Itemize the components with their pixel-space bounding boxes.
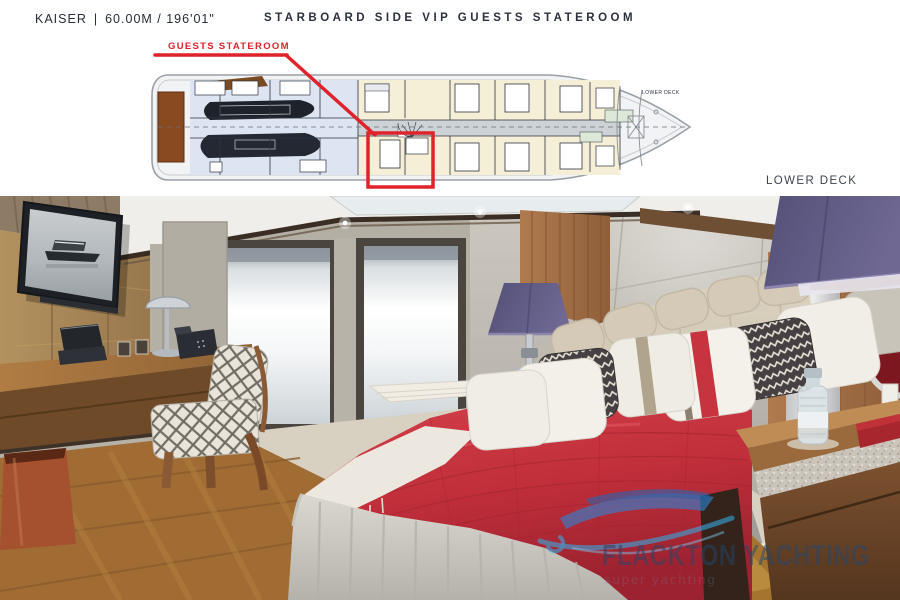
watermark-subtext: super yachting [604, 572, 717, 587]
lower-deck-label: LOWER DECK [766, 175, 857, 187]
desk-frame-small-2 [136, 340, 148, 354]
plan-mini-label: LOWER DECK [642, 90, 680, 96]
wastebasket [0, 448, 76, 550]
page-title: STARBOARD SIDE VIP GUESTS STATEROOM [0, 12, 900, 24]
stateroom-photo: FLACKTON YACHTING super yachting [0, 196, 900, 600]
television [18, 202, 130, 317]
corner-lamp [764, 196, 900, 296]
lower-deck-plan: LOWER DECK [150, 40, 695, 192]
watermark-brand-text: FLACKTON YACHTING [602, 540, 870, 572]
window-right [356, 238, 466, 432]
taupe-stripe-pillow [608, 331, 697, 418]
brochure-page: KAISER|60.00M / 196'01" STARBOARD SIDE V… [0, 0, 900, 600]
desk-frame-small [118, 342, 130, 356]
